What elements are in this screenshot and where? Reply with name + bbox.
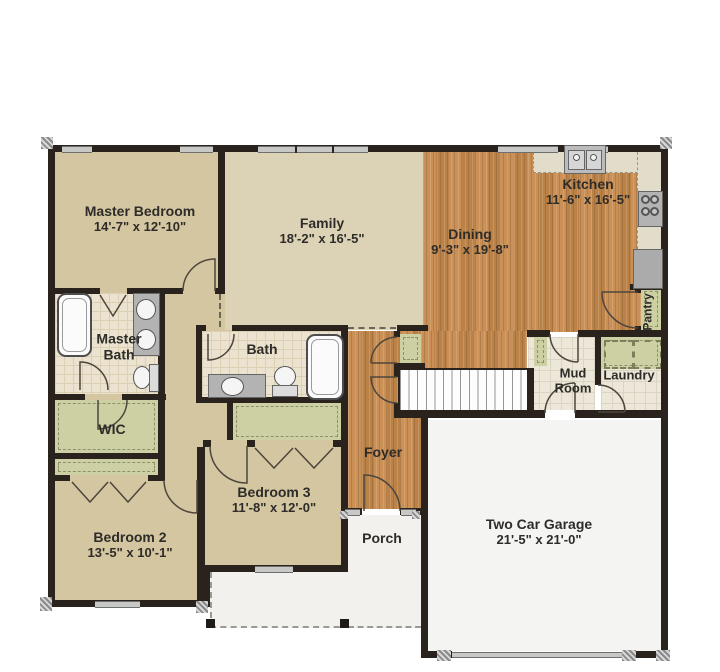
door-stairs <box>371 377 397 403</box>
door-laundry <box>598 385 625 412</box>
room-dims: 11'-8" x 12'-0" <box>232 501 316 516</box>
label-bedroom2: Bedroom 2 13'-5" x 10'-1" <box>87 530 172 560</box>
label-wic: WIC <box>98 422 125 438</box>
bifold-bedroom3-a <box>255 448 293 468</box>
room-name: Pantry <box>641 293 654 330</box>
room-name: Porch <box>362 531 402 547</box>
room-name: Kitchen <box>546 177 630 193</box>
label-master-bath: Master Bath <box>87 331 151 362</box>
room-dims: 21'-5" x 21'-0" <box>486 533 592 548</box>
label-bath: Bath <box>246 342 277 358</box>
label-bedroom3: Bedroom 3 11'-8" x 12'-0" <box>232 485 316 515</box>
room-dims: 18'-2" x 16'-5" <box>279 232 364 247</box>
door-bedroom3 <box>210 446 247 483</box>
label-mud-room: Mud Room <box>544 366 602 395</box>
label-kitchen: Kitchen 11'-6" x 16'-5" <box>546 177 630 207</box>
label-garage: Two Car Garage 21'-5" x 21'-0" <box>486 517 592 547</box>
room-name: Mud Room <box>544 366 602 395</box>
room-name: Master Bath <box>87 331 151 362</box>
floor-plan: Master Bedroom 14'-7" x 12'-10" Family 1… <box>0 0 720 672</box>
bifold-bedroom3-b <box>295 448 333 468</box>
room-name: WIC <box>98 422 125 438</box>
room-dims: 13'-5" x 10'-1" <box>87 546 172 561</box>
room-name: Foyer <box>364 445 402 461</box>
door-masterbath-entry-v <box>100 295 126 316</box>
room-name: Dining <box>431 227 509 243</box>
room-dims: 14'-7" x 12'-10" <box>85 220 195 235</box>
room-name: Bedroom 3 <box>232 485 316 501</box>
label-pantry: Pantry <box>641 293 654 330</box>
label-laundry: Laundry <box>603 369 654 384</box>
label-dining: Dining 9'-3" x 19'-8" <box>431 227 509 257</box>
room-name: Bedroom 2 <box>87 530 172 546</box>
door-dining-mudroom <box>550 334 578 362</box>
door-front-entry <box>364 475 400 511</box>
label-master-bedroom: Master Bedroom 14'-7" x 12'-10" <box>85 204 195 234</box>
room-dims: 9'-3" x 19'-8" <box>431 243 509 258</box>
door-bedroom2 <box>164 480 197 513</box>
room-name: Master Bedroom <box>85 204 195 220</box>
door-masterbath <box>80 362 108 390</box>
label-porch: Porch <box>362 531 402 547</box>
door-hall-bath <box>208 334 234 360</box>
room-name: Laundry <box>603 369 654 384</box>
room-name: Family <box>279 216 364 232</box>
door-foyer-closet <box>371 337 397 363</box>
door-master-bedroom <box>183 259 215 291</box>
door-pantry <box>602 292 638 328</box>
label-family: Family 18'-2" x 16'-5" <box>279 216 364 246</box>
room-name: Bath <box>246 342 277 358</box>
room-dims: 11'-6" x 16'-5" <box>546 193 630 208</box>
bifold-bedroom2-b <box>110 482 146 502</box>
label-foyer: Foyer <box>364 445 402 461</box>
room-name: Two Car Garage <box>486 517 592 533</box>
bifold-bedroom2-a <box>72 482 108 502</box>
